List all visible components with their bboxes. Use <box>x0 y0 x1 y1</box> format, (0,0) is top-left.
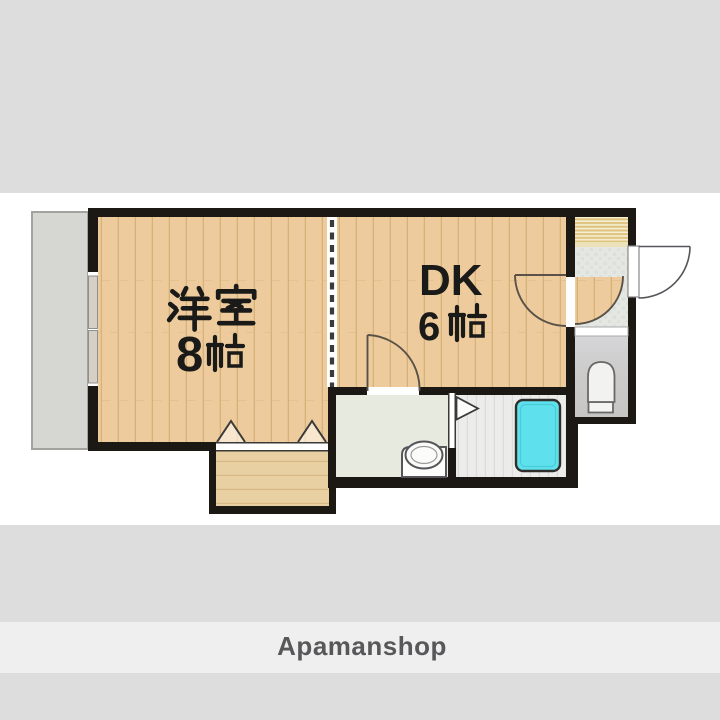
svg-text:DK: DK <box>419 256 483 305</box>
svg-text:6: 6 <box>418 305 440 349</box>
svg-text:8: 8 <box>176 328 203 382</box>
